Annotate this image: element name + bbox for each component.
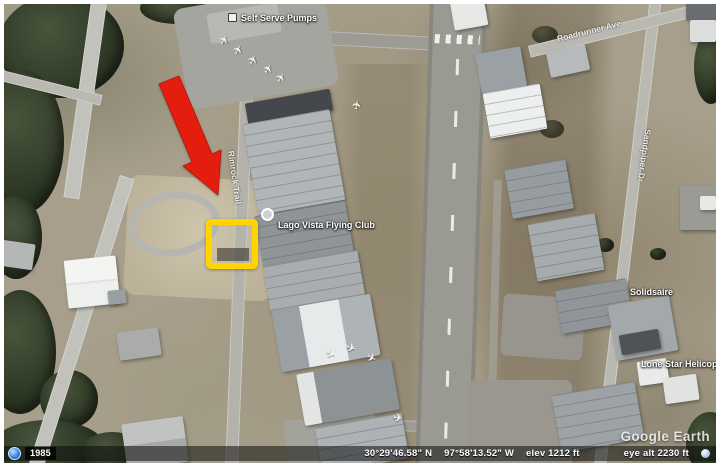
hangar-east-1: [504, 159, 574, 219]
plane-icon: ✈: [350, 99, 364, 111]
imagery-year: 1985: [25, 447, 56, 460]
building-right-edge-top: [686, 4, 716, 20]
google-earth-watermark: Google Earth: [620, 429, 710, 444]
bush-4: [650, 248, 666, 260]
hangar-east-2: [527, 213, 604, 282]
globe-icon: [701, 449, 710, 458]
label-text: Self Serve Pumps: [241, 13, 317, 23]
elevation-readout: elev 1212 ft: [526, 448, 580, 459]
building-west-small: [116, 327, 161, 361]
placemark-pin-icon[interactable]: [263, 210, 272, 219]
highlight-rectangle: [206, 219, 258, 269]
hangar-row-1: [243, 109, 346, 215]
shed-west: [4, 240, 36, 270]
taxiway-connector-top: [330, 31, 435, 50]
label-flying-club[interactable]: Lago Vista Flying Club: [278, 220, 375, 230]
imagery-date-badge[interactable]: 1985: [8, 447, 56, 460]
runway-centerline: [443, 59, 458, 449]
label-solidsaire[interactable]: Solidsaire: [630, 287, 673, 297]
latitude-readout: 30°29'46.58" N: [364, 448, 432, 459]
building-right-edge-white: [690, 20, 716, 42]
fuel-pump-icon: [228, 13, 237, 22]
longitude-readout: 97°58'13.52" W: [444, 448, 514, 459]
eye-altitude-readout: eye alt 2230 ft: [624, 448, 689, 459]
plane-icon: ✈: [392, 411, 404, 424]
label-lone-star-helicopters[interactable]: Lone Star Helicopters: [641, 359, 716, 369]
status-bar: 1985 30°29'46.58" N 97°58'13.52" W elev …: [4, 446, 716, 461]
history-clock-icon[interactable]: [8, 447, 21, 460]
runway-threshold: [435, 34, 480, 44]
label-self-serve-pumps[interactable]: Self Serve Pumps: [228, 13, 317, 23]
building-white-west-annex: [107, 289, 126, 305]
building-helicopters-2: [662, 374, 699, 404]
satellite-map[interactable]: ✈ ✈ ✈ ✈ ✈ ✈ ✈ ✈ ✈ ✈ Self Serve Pumps Lag…: [4, 4, 716, 463]
building-right-edge-mid-white: [700, 196, 716, 210]
highlight-shadow-patch: [217, 248, 249, 261]
